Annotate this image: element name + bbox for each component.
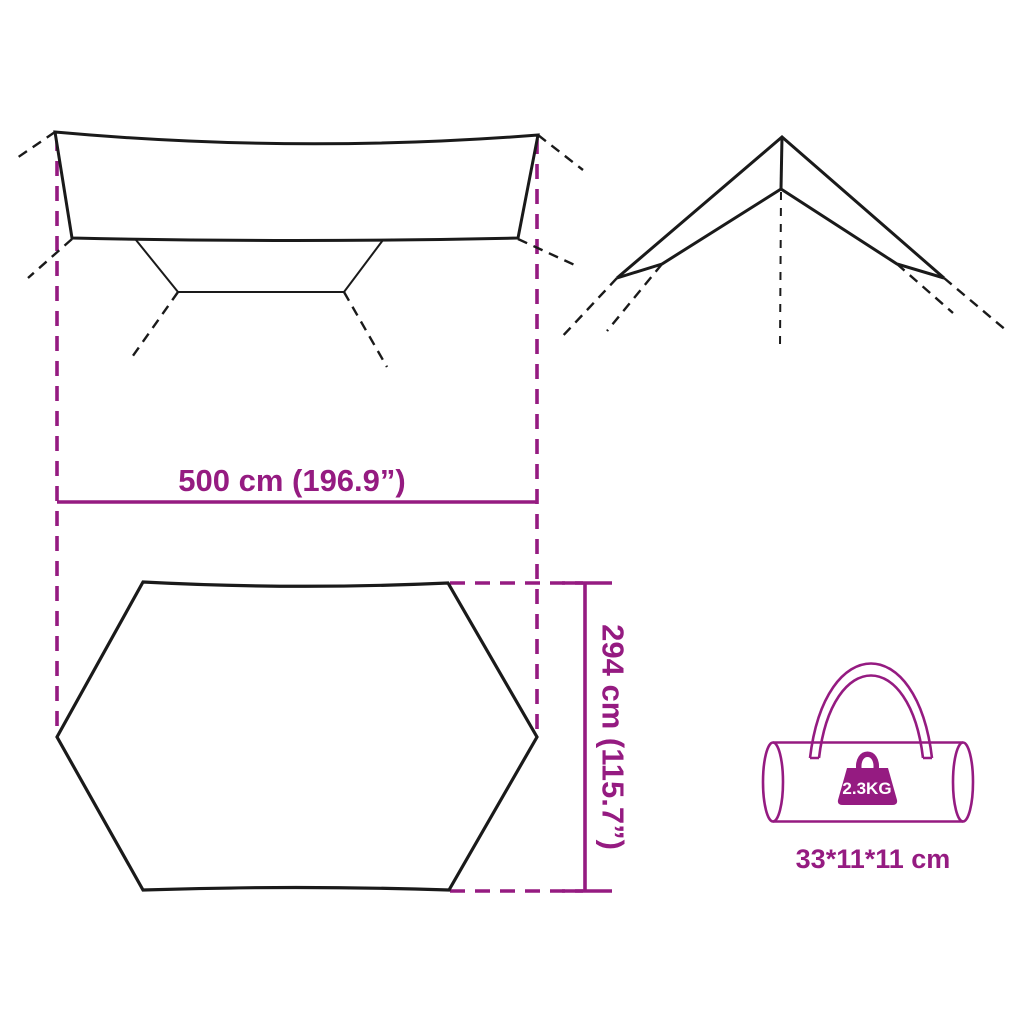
guy-line-icon bbox=[130, 292, 178, 360]
weight-value-label: 2.3KG bbox=[842, 779, 891, 798]
bag-handle-outer bbox=[810, 664, 932, 759]
center-drop-dashed-line bbox=[780, 192, 781, 348]
ridge-drop-line bbox=[781, 137, 782, 189]
guy-line-icon bbox=[538, 135, 583, 170]
guy-line-icon bbox=[344, 292, 387, 367]
bag-handle-inner bbox=[819, 676, 923, 759]
bag-end-right bbox=[953, 743, 973, 822]
back-edge-left bbox=[617, 189, 781, 278]
bag-size-label: 33*11*11 cm bbox=[796, 844, 951, 874]
tarp-top-view-hexagon bbox=[57, 582, 537, 890]
tarp-back-edge bbox=[136, 240, 383, 292]
bag-end-left bbox=[763, 743, 783, 822]
depth-dimension-label: 294 cm (115.7”) bbox=[596, 624, 631, 850]
diagram-canvas: 500 cm (196.9”) 294 cm (115.7”) 2.3KG bbox=[0, 0, 1024, 1024]
width-dimension-label: 500 cm (196.9”) bbox=[178, 463, 405, 498]
guy-line-icon bbox=[944, 278, 1007, 331]
guy-line-icon bbox=[14, 132, 55, 160]
weight-icon: 2.3KG bbox=[838, 754, 897, 805]
tarp-end-view bbox=[559, 137, 1007, 348]
guy-line-icon bbox=[518, 239, 579, 267]
tarp-dimension-diagram: 500 cm (196.9”) 294 cm (115.7”) 2.3KG bbox=[0, 0, 1024, 1024]
weight-handle-loop bbox=[859, 754, 877, 770]
tarp-front-view bbox=[14, 132, 583, 367]
back-edge-right bbox=[781, 189, 944, 278]
tarp-canopy-outline bbox=[55, 132, 538, 241]
guy-line-icon bbox=[28, 239, 72, 278]
hexagon-outline bbox=[57, 582, 537, 890]
